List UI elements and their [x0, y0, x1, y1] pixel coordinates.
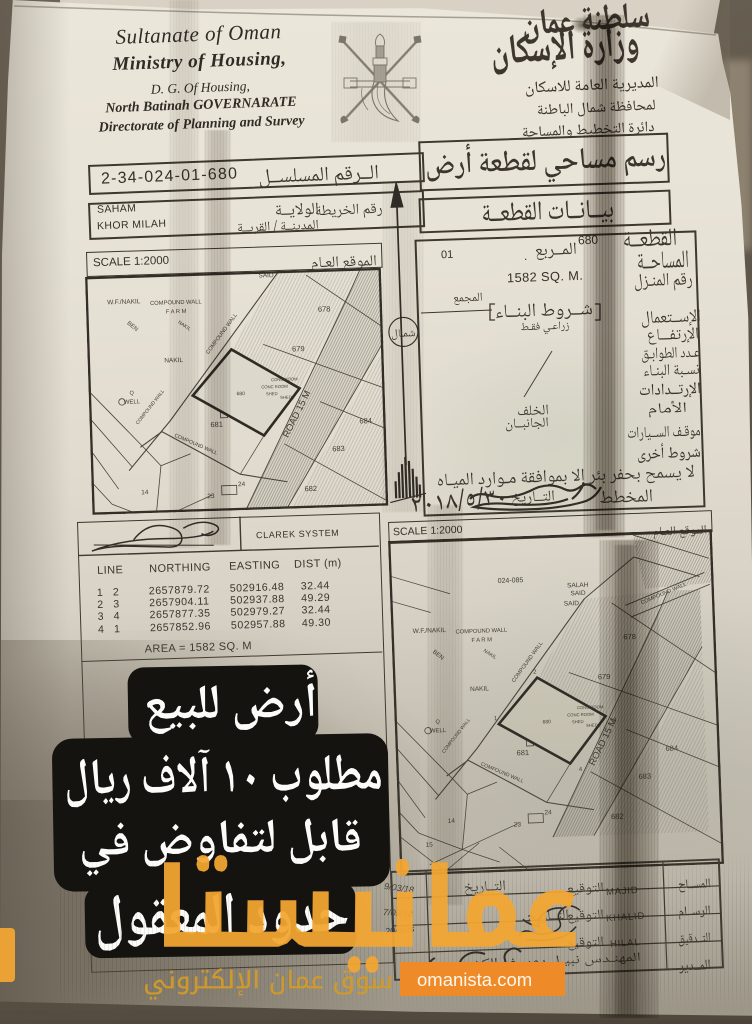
- svg-text:684: 684: [359, 416, 372, 425]
- svg-text:BEN: BEN: [126, 321, 139, 333]
- svg-text:CONC ROOM: CONC ROOM: [261, 384, 288, 390]
- svg-text:24: 24: [238, 481, 246, 488]
- svg-text:CONC ROOM: CONC ROOM: [271, 376, 298, 382]
- svg-text:SHED: SHED: [280, 395, 292, 400]
- svg-text:678: 678: [318, 304, 331, 313]
- svg-text:680: 680: [236, 391, 245, 397]
- svg-text:683: 683: [332, 444, 345, 453]
- svg-text:SAID: SAID: [570, 590, 586, 598]
- svg-text:SHED: SHED: [266, 391, 278, 396]
- svg-text:WELL: WELL: [124, 399, 141, 406]
- svg-text:679: 679: [292, 344, 305, 353]
- svg-text:SALAH: SALAH: [567, 582, 589, 590]
- svg-text:W.F./NAKIL: W.F./NAKIL: [107, 298, 141, 306]
- svg-text:14: 14: [141, 489, 149, 496]
- svg-text:682: 682: [304, 484, 317, 493]
- svg-text:Q: Q: [129, 391, 134, 397]
- svg-text:024-085: 024-085: [498, 577, 524, 585]
- svg-text:COMPOUND WALL: COMPOUND WALL: [135, 388, 166, 426]
